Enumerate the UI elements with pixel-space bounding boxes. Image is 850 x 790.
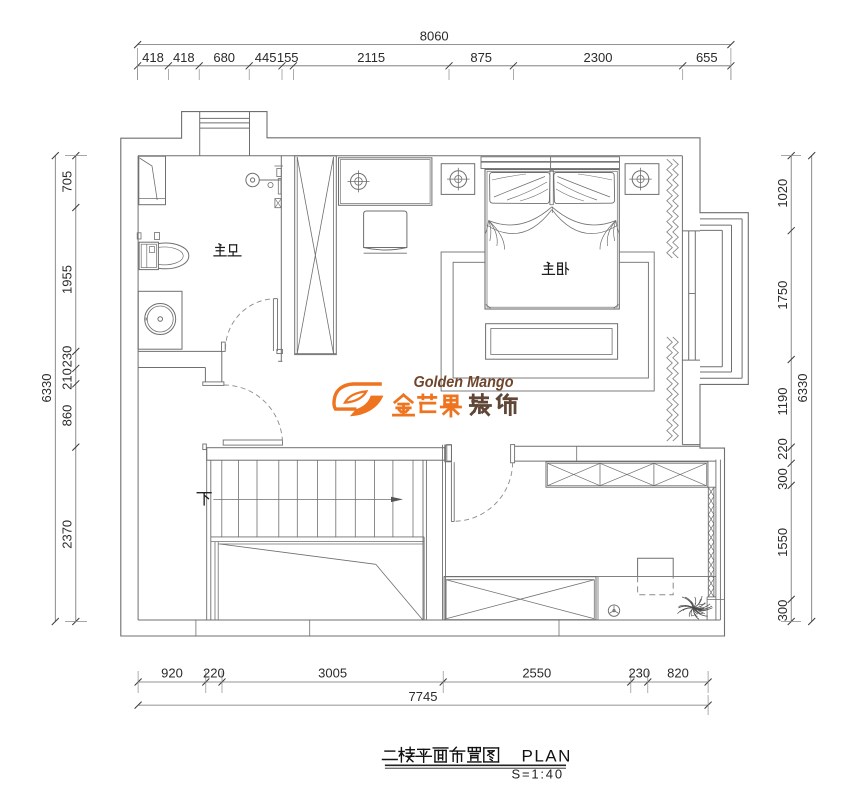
svg-text:705: 705: [60, 171, 75, 193]
svg-text:418: 418: [173, 50, 195, 65]
svg-text:875: 875: [470, 50, 492, 65]
svg-text:Golden Mango: Golden Mango: [414, 374, 514, 391]
svg-text:1955: 1955: [60, 265, 75, 294]
svg-text:8060: 8060: [420, 29, 449, 44]
svg-text:300: 300: [775, 468, 790, 490]
svg-text:2370: 2370: [60, 520, 75, 549]
svg-text:220: 220: [775, 438, 790, 460]
svg-text:2115: 2115: [357, 50, 385, 65]
svg-text:445: 445: [255, 50, 277, 65]
svg-text:860: 860: [60, 405, 75, 427]
svg-text:920: 920: [161, 666, 183, 681]
svg-text:210: 210: [60, 368, 75, 390]
svg-text:230: 230: [60, 346, 75, 368]
svg-text:1550: 1550: [775, 528, 790, 557]
svg-text:418: 418: [142, 50, 164, 65]
svg-text:3005: 3005: [318, 666, 347, 681]
svg-text:230: 230: [628, 666, 650, 681]
svg-text:300: 300: [775, 600, 790, 622]
svg-text:1020: 1020: [775, 179, 790, 208]
svg-text:1750: 1750: [775, 281, 790, 310]
svg-text:820: 820: [667, 666, 689, 681]
svg-text:7745: 7745: [409, 689, 438, 704]
svg-text:6330: 6330: [795, 374, 810, 403]
svg-text:2300: 2300: [584, 50, 613, 65]
svg-text:1190: 1190: [775, 388, 790, 416]
svg-text:680: 680: [213, 50, 235, 65]
svg-text:655: 655: [696, 50, 718, 65]
svg-text:220: 220: [203, 666, 225, 681]
svg-text:2550: 2550: [522, 666, 551, 681]
svg-text:PLAN: PLAN: [522, 747, 572, 766]
svg-text:6330: 6330: [39, 374, 54, 403]
svg-text:155: 155: [277, 50, 299, 65]
svg-text:S=1:40: S=1:40: [512, 767, 564, 782]
